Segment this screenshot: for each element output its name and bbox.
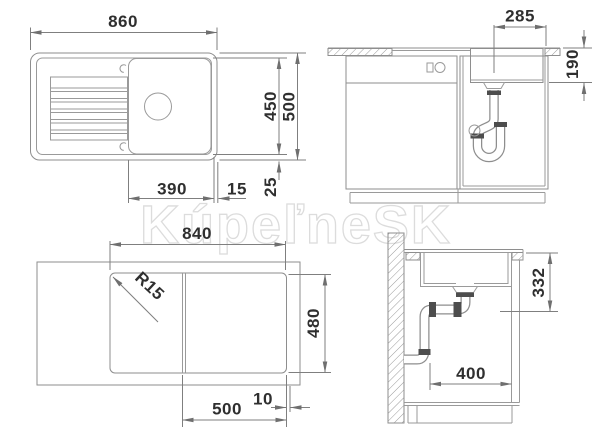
- wall-section: 332 400: [388, 233, 558, 423]
- dim-450: 450: [213, 58, 287, 155]
- strainer-flange-side: [453, 287, 478, 293]
- dim-840-label: 840: [182, 224, 212, 243]
- dim-285-label: 285: [505, 7, 535, 26]
- dim-480-label: 480: [304, 308, 323, 338]
- dim-190: 190: [549, 30, 592, 101]
- drain-hole: [145, 93, 172, 120]
- wall: [388, 233, 404, 423]
- strainer-flange: [484, 83, 505, 89]
- dim-500-label: 500: [280, 92, 299, 122]
- bowl-section-side: [421, 253, 512, 287]
- dim-285: 285: [494, 7, 546, 74]
- dim-10: 10: [253, 386, 310, 412]
- front-elevation: 285 190: [328, 7, 592, 204]
- top-view-sink: 860 450 500 25 390 15: [31, 12, 307, 203]
- knob-circle: [435, 63, 445, 73]
- cabinet-left: [346, 56, 457, 189]
- knob-square: [427, 63, 433, 72]
- dim-480: 480: [289, 275, 332, 373]
- dim-332-label: 332: [529, 268, 548, 298]
- dim-332: 332: [500, 253, 558, 312]
- strainer-nut: [456, 293, 474, 298]
- technical-drawing-sheet: KúpeľneSK 860: [0, 0, 600, 447]
- dim-25-label: 25: [261, 177, 280, 197]
- worktop-outline: [37, 262, 300, 385]
- accessory-clip-bottom: [120, 143, 126, 151]
- sink-bowl-outline: [129, 59, 212, 155]
- dim-400-label: 400: [456, 364, 486, 383]
- dim-15-label: 15: [227, 180, 247, 199]
- dim-450-label: 450: [261, 91, 280, 121]
- sink-outer-rim: [31, 53, 218, 160]
- drainboard-grooves: [51, 88, 128, 134]
- dim-400: 400: [430, 363, 512, 390]
- dim-190-label: 190: [563, 49, 582, 79]
- counter-section-right: [512, 253, 523, 261]
- countertop-section-right: [545, 49, 560, 56]
- countertop-section-left: [328, 49, 392, 56]
- counter-section-left: [406, 253, 420, 261]
- accessory-clip-top: [120, 65, 126, 73]
- plinth-side: [408, 406, 512, 424]
- dim-390-label: 390: [157, 180, 187, 199]
- cutout-outline: [110, 273, 287, 373]
- dim-500-label: 500: [212, 400, 242, 419]
- dim-25: 25: [261, 162, 280, 197]
- dim-10-label: 10: [253, 390, 273, 409]
- bowl-section: [471, 49, 544, 83]
- dim-860-label: 860: [108, 12, 138, 31]
- dim-860: 860: [31, 12, 218, 50]
- dim-r15: R15: [113, 268, 168, 322]
